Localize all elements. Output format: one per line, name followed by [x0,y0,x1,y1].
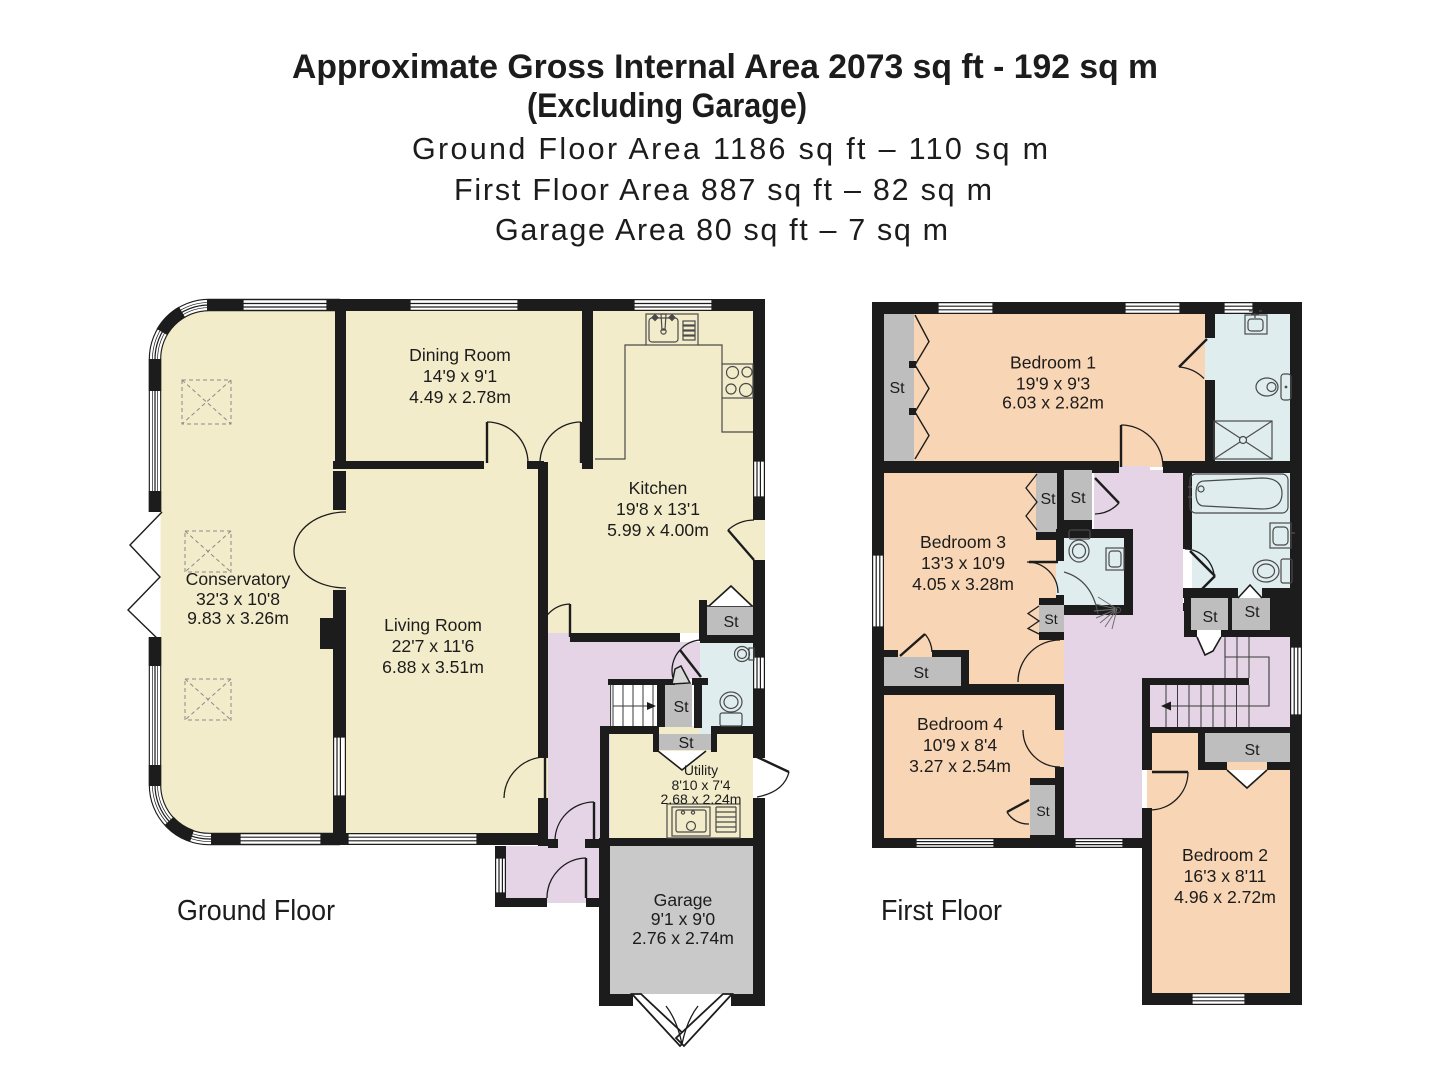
svg-text:4.96 x 2.72m: 4.96 x 2.72m [1174,887,1276,907]
svg-text:Bedroom 4: Bedroom 4 [917,714,1003,734]
svg-text:Living Room: Living Room [384,615,482,635]
svg-text:St: St [1040,491,1056,508]
svg-text:St: St [913,665,929,682]
svg-text:St: St [673,699,689,716]
svg-text:St: St [889,380,905,397]
svg-text:16'3 x 8'11: 16'3 x 8'11 [1184,866,1267,886]
svg-text:10'9 x 8'4: 10'9 x 8'4 [923,735,997,755]
svg-text:13'3 x 10'9: 13'3 x 10'9 [921,553,1005,573]
svg-text:6.03 x 2.82m: 6.03 x 2.82m [1002,393,1104,413]
svg-text:Dining Room: Dining Room [409,345,511,365]
svg-text:Bedroom 3: Bedroom 3 [920,532,1006,552]
svg-text:Conservatory: Conservatory [186,569,291,589]
svg-text:Garage Area 80 sq ft – 7 sq m: Garage Area 80 sq ft – 7 sq m [495,213,948,247]
svg-text:St: St [1244,742,1260,759]
svg-text:Approximate Gross Internal Are: Approximate Gross Internal Area 2073 sq … [292,48,1158,86]
svg-text:5.99 x 4.00m: 5.99 x 4.00m [607,520,709,540]
svg-text:19'9 x 9'3: 19'9 x 9'3 [1016,374,1090,394]
svg-text:First Floor Area 887 sq ft – 8: First Floor Area 887 sq ft – 82 sq m [454,173,992,207]
svg-text:19'8 x 13'1: 19'8 x 13'1 [616,499,700,519]
svg-text:St: St [1202,609,1218,626]
svg-text:Utility: Utility [684,762,718,778]
svg-text:St: St [723,614,739,631]
svg-text:4.05 x 3.28m: 4.05 x 3.28m [912,574,1014,594]
svg-text:First Floor: First Floor [881,895,1002,927]
svg-text:6.88 x 3.51m: 6.88 x 3.51m [382,657,484,677]
svg-text:Ground Floor: Ground Floor [177,895,335,927]
svg-text:St: St [678,735,694,752]
svg-text:9.83 x 3.26m: 9.83 x 3.26m [187,608,289,628]
svg-text:14'9 x 9'1: 14'9 x 9'1 [423,366,497,386]
svg-text:Kitchen: Kitchen [629,478,688,498]
svg-text:32'3 x 10'8: 32'3 x 10'8 [196,589,280,609]
svg-text:St: St [1036,803,1049,819]
svg-text:St: St [1070,490,1086,507]
svg-text:Garage: Garage [654,890,713,910]
svg-text:4.49 x 2.78m: 4.49 x 2.78m [409,387,511,407]
svg-text:2.76 x 2.74m: 2.76 x 2.74m [632,928,734,948]
svg-text:3.27 x 2.54m: 3.27 x 2.54m [909,756,1011,776]
svg-text:9'1 x 9'0: 9'1 x 9'0 [651,909,716,929]
svg-text:2.68 x 2.24m: 2.68 x 2.24m [661,791,742,807]
svg-text:St: St [1044,611,1057,627]
svg-text:St: St [1244,604,1260,621]
svg-text:Bedroom 2: Bedroom 2 [1182,845,1268,865]
svg-text:Ground Floor Area 1186 sq ft –: Ground Floor Area 1186 sq ft – 110 sq m [412,132,1048,166]
svg-text:22'7 x 11'6: 22'7 x 11'6 [392,636,475,656]
svg-text:(Excluding Garage): (Excluding Garage) [527,87,807,125]
svg-text:Bedroom 1: Bedroom 1 [1010,353,1096,373]
